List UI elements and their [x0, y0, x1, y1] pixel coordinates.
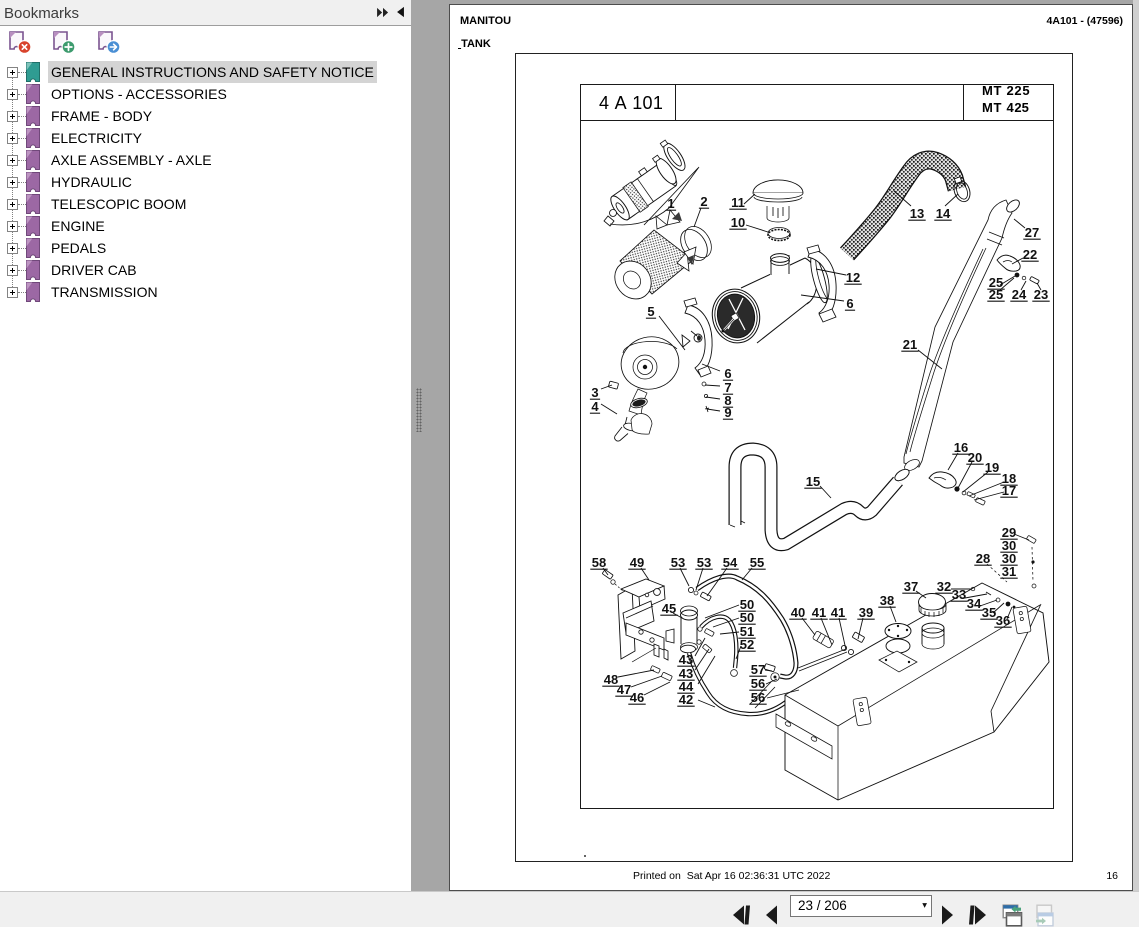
svg-text:34: 34	[967, 596, 982, 611]
svg-text:19: 19	[985, 460, 999, 475]
svg-text:32: 32	[937, 579, 951, 594]
svg-text:58: 58	[592, 555, 606, 570]
svg-text:55: 55	[750, 555, 764, 570]
svg-text:10: 10	[731, 215, 745, 230]
svg-text:36: 36	[996, 613, 1010, 628]
svg-text:23: 23	[1034, 287, 1048, 302]
svg-text:39: 39	[859, 605, 873, 620]
svg-text:42: 42	[679, 692, 693, 707]
svg-text:6: 6	[846, 296, 853, 311]
svg-text:16: 16	[954, 440, 968, 455]
svg-text:3: 3	[591, 385, 598, 400]
svg-text:24: 24	[1012, 287, 1027, 302]
svg-text:6: 6	[724, 366, 731, 381]
svg-text:21: 21	[903, 337, 917, 352]
svg-text:46: 46	[630, 690, 644, 705]
svg-text:40: 40	[791, 605, 805, 620]
svg-text:56: 56	[751, 676, 765, 691]
svg-text:9: 9	[724, 405, 731, 420]
svg-text:35: 35	[982, 605, 996, 620]
svg-text:2: 2	[700, 194, 707, 209]
svg-text:43: 43	[679, 652, 693, 667]
svg-text:13: 13	[910, 206, 924, 221]
svg-text:37: 37	[904, 579, 918, 594]
svg-text:52: 52	[740, 637, 754, 652]
svg-text:1: 1	[667, 196, 674, 211]
svg-text:41: 41	[831, 605, 845, 620]
svg-text:57: 57	[751, 662, 765, 677]
svg-text:27: 27	[1025, 225, 1039, 240]
svg-text:53: 53	[671, 555, 685, 570]
svg-text:15: 15	[806, 474, 820, 489]
svg-text:14: 14	[936, 206, 951, 221]
svg-text:11: 11	[731, 195, 745, 210]
svg-text:54: 54	[723, 555, 738, 570]
svg-text:45: 45	[662, 601, 676, 616]
svg-text:22: 22	[1023, 247, 1037, 262]
svg-text:33: 33	[952, 587, 966, 602]
svg-text:38: 38	[880, 593, 894, 608]
svg-text:28: 28	[976, 551, 990, 566]
svg-text:31: 31	[1002, 564, 1016, 579]
svg-text:25: 25	[989, 287, 1003, 302]
svg-text:4: 4	[591, 399, 599, 414]
svg-text:17: 17	[1002, 483, 1016, 498]
svg-text:41: 41	[812, 605, 826, 620]
svg-text:56: 56	[751, 690, 765, 705]
svg-text:49: 49	[630, 555, 644, 570]
svg-text:20: 20	[968, 450, 982, 465]
svg-text:50: 50	[740, 610, 754, 625]
svg-text:12: 12	[846, 270, 860, 285]
svg-text:53: 53	[697, 555, 711, 570]
svg-text:5: 5	[647, 304, 654, 319]
